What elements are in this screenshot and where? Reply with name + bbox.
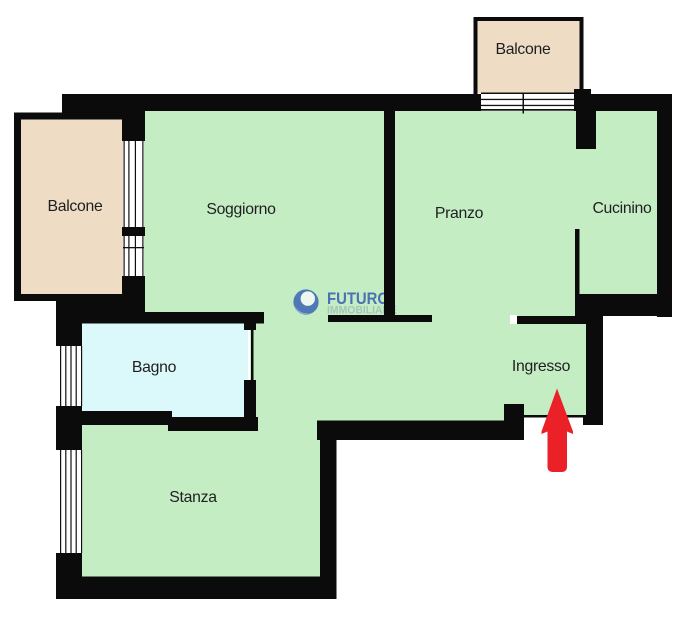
svg-text:Cucinino: Cucinino <box>592 200 652 217</box>
svg-text:Ingresso: Ingresso <box>512 358 571 375</box>
svg-text:Bagno: Bagno <box>132 359 177 376</box>
svg-text:Soggiorno: Soggiorno <box>206 201 276 218</box>
svg-text:Pranzo: Pranzo <box>435 205 484 222</box>
svg-text:Balcone: Balcone <box>48 198 104 215</box>
svg-text:Stanza: Stanza <box>169 489 217 506</box>
svg-text:Balcone: Balcone <box>496 41 552 58</box>
